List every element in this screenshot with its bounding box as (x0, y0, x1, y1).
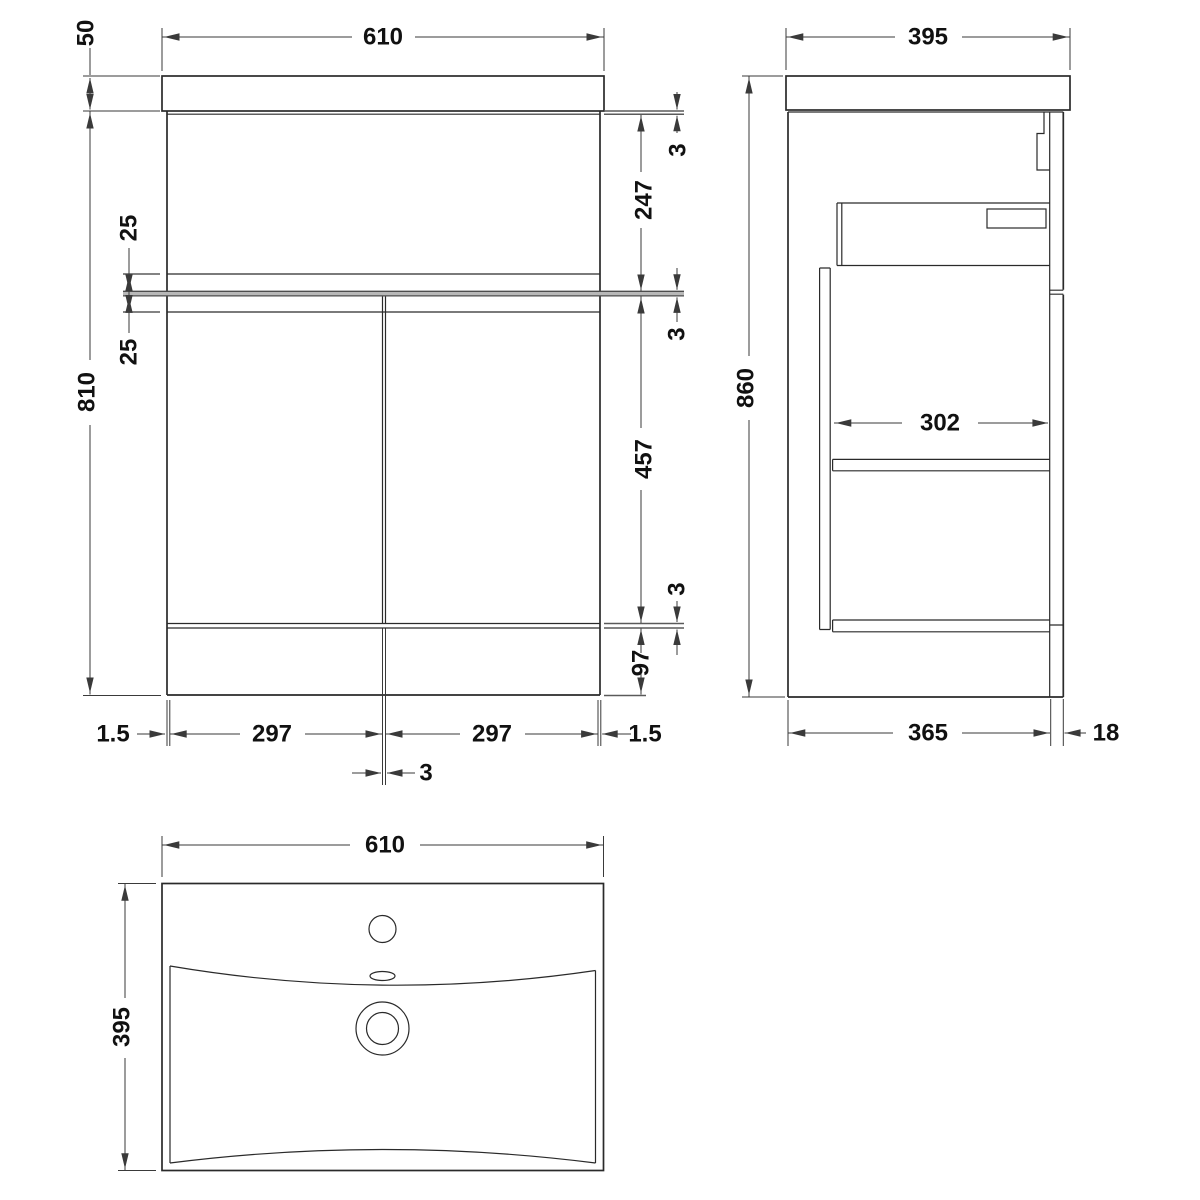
side-drawer-rail (987, 209, 1046, 228)
side-floor-panel (833, 620, 1050, 632)
waste-outer (356, 1002, 409, 1055)
top-view-dimensions (118, 836, 604, 1171)
dim-front-plinth-97: 97 (628, 650, 655, 677)
dim-side-internal-302: 302 (920, 410, 960, 437)
side-hanging-bracket (1037, 112, 1050, 170)
dim-front-door-right: 297 (472, 721, 512, 748)
dim-front-panel-247: 247 (631, 180, 658, 220)
top-view: 610 395 (109, 832, 604, 1171)
side-shelf (833, 459, 1050, 470)
dim-front-gap-top-3: 3 (665, 143, 692, 156)
front-dimensions (83, 28, 677, 785)
side-drawer-section (837, 203, 1050, 266)
dim-side-depth: 395 (908, 24, 948, 51)
dim-front-edge-left: 1.5 (96, 721, 129, 748)
dim-side-body-365: 365 (908, 720, 948, 747)
front-cabinet-outline (167, 111, 600, 695)
dim-front-gap-bottom-3: 3 (664, 582, 691, 595)
basin-outer (162, 884, 604, 1171)
front-gap-band (123, 292, 684, 296)
side-dimensions (742, 28, 1086, 746)
overflow-slot (370, 972, 395, 981)
dim-front-width: 610 (363, 24, 403, 51)
basin-back-curve (170, 1150, 596, 1164)
vanity-dimension-drawing: 610 50 810 25 25 3 247 3 457 3 97 1.5 29… (0, 0, 1200, 1200)
side-outline (788, 112, 1063, 697)
side-countertop (786, 76, 1070, 110)
front-door-gap (383, 296, 386, 624)
dim-top-width: 610 (365, 832, 405, 859)
dim-front-gap-upper-25: 25 (116, 215, 143, 242)
dim-front-door-457: 457 (631, 439, 658, 479)
side-top-and-back (788, 112, 1063, 697)
front-internal-lines (167, 114, 600, 628)
dim-front-total-height: 810 (74, 372, 101, 412)
dim-front-basin-height: 50 (73, 20, 100, 47)
front-countertop (162, 76, 604, 111)
drawing-canvas: 610 50 810 25 25 3 247 3 457 3 97 1.5 29… (0, 0, 1200, 1200)
side-back-joints (1050, 290, 1064, 625)
dim-front-edge-right: 1.5 (628, 721, 661, 748)
waste-inner (367, 1013, 399, 1045)
front-view: 610 50 810 25 25 3 247 3 457 3 97 1.5 29… (73, 20, 692, 787)
dim-side-height: 860 (733, 368, 760, 408)
tap-hole (369, 916, 396, 943)
dim-front-gap-lower-25: 25 (116, 339, 143, 366)
basin-inner-sides (170, 966, 596, 1163)
dim-side-back-18: 18 (1093, 720, 1120, 747)
side-door-section (820, 268, 831, 630)
dim-front-center-gap: 3 (419, 760, 432, 787)
basin-front-curve (170, 966, 596, 985)
side-view: 395 860 302 365 18 (733, 24, 1120, 747)
dim-top-depth: 395 (109, 1007, 136, 1047)
dim-front-door-left: 297 (252, 721, 292, 748)
dim-front-gap-mid-3: 3 (664, 327, 691, 340)
